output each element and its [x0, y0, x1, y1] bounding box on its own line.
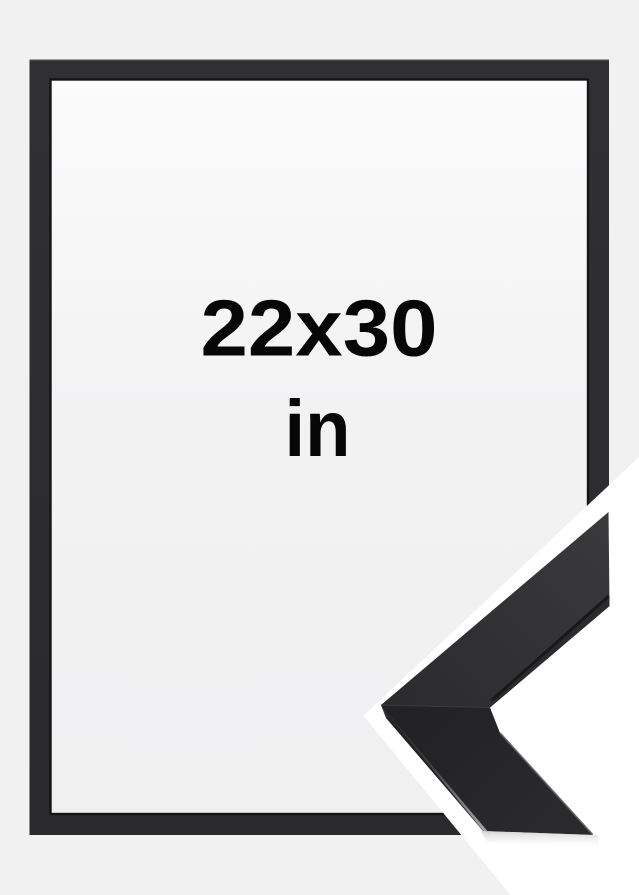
svg-text:22x30: 22x30 — [201, 284, 438, 373]
svg-text:in: in — [285, 384, 351, 473]
